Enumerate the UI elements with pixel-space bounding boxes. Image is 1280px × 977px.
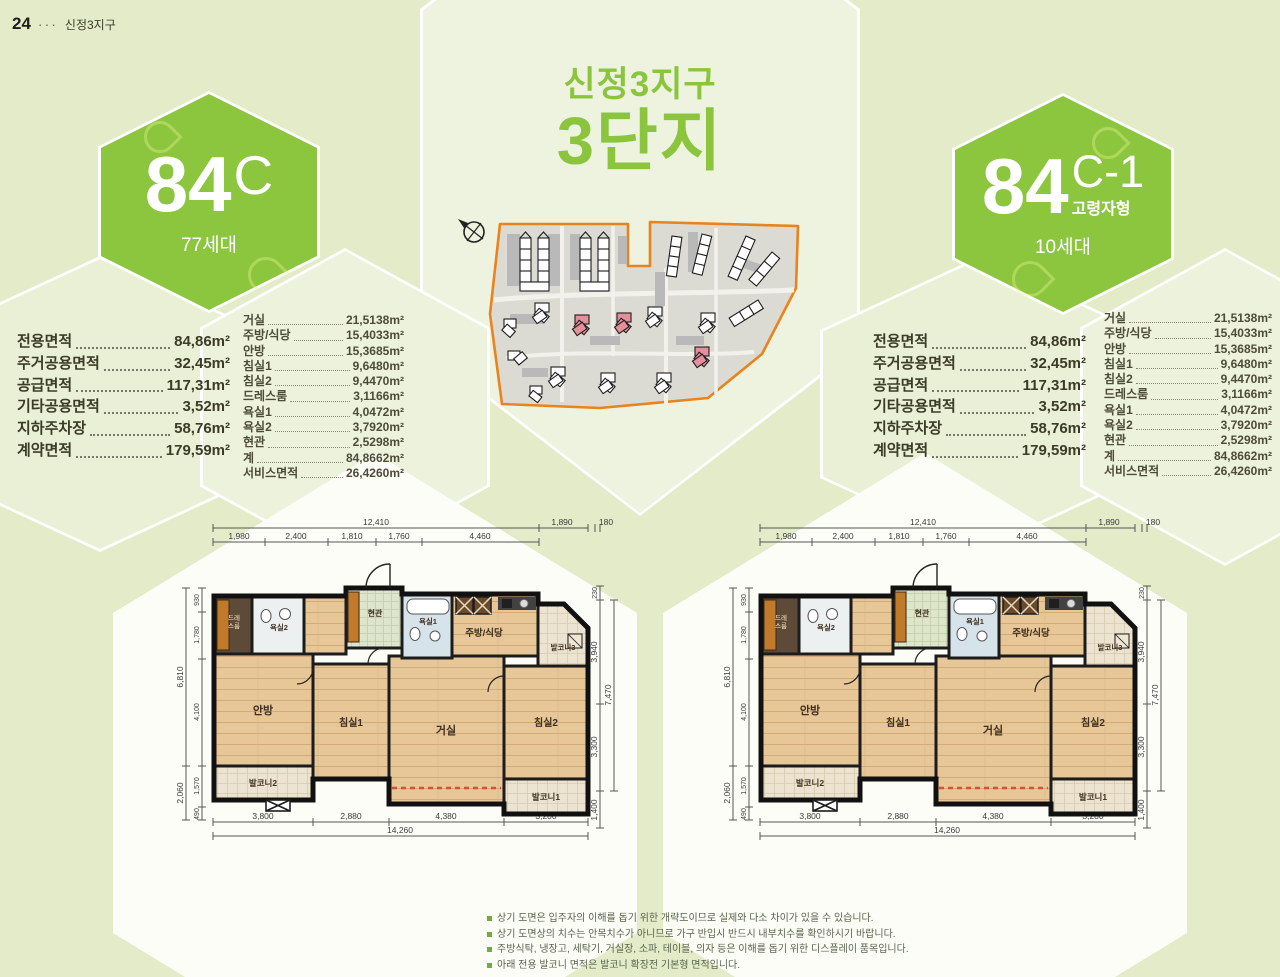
unit-households: 77세대 <box>181 230 237 257</box>
unit-size: 84 <box>982 149 1069 223</box>
spec-value: 32,45m² <box>1030 353 1086 375</box>
svg-text:930: 930 <box>741 594 748 606</box>
svg-text:발코니3: 발코니3 <box>1098 642 1123 652</box>
spec-value: 9,6480m² <box>353 359 404 374</box>
complex-name: 3단지 <box>440 107 840 177</box>
spec-label: 침실2 <box>243 374 272 389</box>
spec-label: 안방 <box>243 344 265 359</box>
spec-value: 15,4033m² <box>346 328 404 343</box>
spec-value: 84,8662m² <box>346 451 404 466</box>
dotted-leader <box>290 401 350 402</box>
spec-label: 현관 <box>243 435 265 450</box>
svg-text:발코니2: 발코니2 <box>249 778 277 788</box>
svg-text:발코니1: 발코니1 <box>532 792 560 802</box>
spec-label: 계 <box>1104 449 1115 464</box>
spec-label: 전용면적 <box>17 331 72 353</box>
svg-text:4,460: 4,460 <box>1016 531 1038 541</box>
spec-label: 계약면적 <box>17 440 72 462</box>
dotted-leader <box>268 447 350 448</box>
spec-label: 안방 <box>1104 342 1126 357</box>
svg-text:발코니2: 발코니2 <box>796 778 824 788</box>
svg-text:욕실2: 욕실2 <box>270 622 288 632</box>
svg-text:침실2: 침실2 <box>534 716 558 729</box>
svg-text:1,810: 1,810 <box>888 531 910 541</box>
svg-text:침실1: 침실1 <box>339 716 363 729</box>
spec-row: 안방15,3685m² <box>1104 342 1272 357</box>
spec-row: 욕실14,0472m² <box>243 405 404 420</box>
dotted-leader <box>268 355 343 356</box>
footnote-line: 상기 도면상의 치수는 안목치수가 아니므로 가구 반입시 반드시 내부치수를 … <box>487 927 932 943</box>
site-map <box>450 196 830 428</box>
spec-row: 드레스룸3,1166m² <box>1104 387 1272 402</box>
spec-row: 전용면적84,86m² <box>873 331 1086 353</box>
toilet <box>808 610 818 623</box>
footnote-text: 상기 도면은 입주자의 이해를 돕기 위한 개략도이므로 실제와 다소 차이가 … <box>497 911 874 927</box>
sink <box>977 631 987 641</box>
kitchen-sink <box>520 600 528 608</box>
svg-text:1,890: 1,890 <box>1098 517 1120 527</box>
spec-label: 서비스면적 <box>1104 464 1159 479</box>
spec-row: 주거공용면적32,45m² <box>873 353 1086 375</box>
spec-value: 3,52m² <box>182 396 230 418</box>
spec-row: 욕실23,7920m² <box>243 420 404 435</box>
dotted-leader <box>76 390 162 392</box>
spec-label: 침실1 <box>1104 357 1133 372</box>
svg-text:4,100: 4,100 <box>741 703 748 721</box>
svg-text:1,980: 1,980 <box>228 531 250 541</box>
spec-value: 58,76m² <box>1030 418 1086 440</box>
building <box>598 232 609 282</box>
spec-label: 욕실2 <box>1104 418 1133 433</box>
dotted-leader <box>1136 414 1218 415</box>
dim-top-labels: 12,410 1,890 180 1,980 2,400 1,810 1,760… <box>775 517 1160 541</box>
range <box>502 599 512 608</box>
header-dots: ··· <box>38 16 58 32</box>
spec-label: 드레스룸 <box>1104 387 1148 402</box>
spec-label: 욕실1 <box>243 405 272 420</box>
balcony-box <box>813 800 837 811</box>
spec-value: 179,59m² <box>166 440 230 462</box>
floorplan-left: 12,410 1,890 180 1,980 2,400 1,810 1,760… <box>168 514 628 859</box>
svg-text:2,880: 2,880 <box>340 811 362 821</box>
spec-label: 침실2 <box>1104 372 1133 387</box>
entry-door-arc <box>366 564 390 588</box>
spec-value: 15,3685m² <box>1214 342 1272 357</box>
dotted-leader <box>1129 353 1211 354</box>
svg-text:2,060: 2,060 <box>722 782 732 804</box>
spec-row: 거실21,5138m² <box>1104 311 1272 326</box>
room-table-left: 거실21,5138m²주방/식당15,4033m²안방15,3685m²침실19… <box>243 313 404 481</box>
floorplan-drawing: 12,410 1,890 180 1,980 2,400 1,810 1,760… <box>168 514 628 859</box>
spec-value: 9,4470m² <box>1221 372 1272 387</box>
spec-row: 주거공용면적32,45m² <box>17 353 230 375</box>
footnote-line: 상기 도면은 입주자의 이해를 돕기 위한 개략도이므로 실제와 다소 차이가 … <box>487 911 932 927</box>
footnote-text: 상기 도면상의 치수는 안목치수가 아니므로 가구 반입시 반드시 내부치수를 … <box>497 927 896 943</box>
spec-row: 주방/식당15,4033m² <box>243 328 404 343</box>
svg-text:침실1: 침실1 <box>886 716 910 729</box>
svg-text:3,800: 3,800 <box>252 811 274 821</box>
floorplan-drawing: 12,410 1,890 180 1,980 2,400 1,810 1,760… <box>715 514 1175 859</box>
spec-value: 4,0472m² <box>353 405 404 420</box>
spec-label: 침실1 <box>243 359 272 374</box>
svg-text:안방: 안방 <box>253 703 273 717</box>
door-arc <box>915 648 931 664</box>
bullet-square-icon <box>487 947 492 952</box>
spec-value: 9,6480m² <box>1221 357 1272 372</box>
bullet-square-icon <box>487 916 492 921</box>
unit-type-group: C-1 고령자형 <box>1072 149 1145 219</box>
spec-label: 공급면적 <box>17 375 72 397</box>
svg-text:14,260: 14,260 <box>934 825 960 835</box>
footnote-line: 주방식탁, 냉장고, 세탁기, 거실장, 소파, 테이블, 의자 등은 이해를 … <box>487 942 932 958</box>
dotted-leader <box>1136 383 1218 384</box>
spec-value: 84,86m² <box>174 331 230 353</box>
svg-text:현관: 현관 <box>368 608 383 618</box>
svg-text:180: 180 <box>599 517 613 527</box>
svg-text:490: 490 <box>741 808 748 820</box>
dim-top-labels: 12,410 1,890 180 1,980 2,400 1,810 1,760… <box>228 517 613 541</box>
spec-row: 전용면적84,86m² <box>17 331 230 353</box>
spec-row: 안방15,3685m² <box>243 344 404 359</box>
spec-value: 26,4260m² <box>1214 464 1272 479</box>
unit-households: 10세대 <box>1035 232 1091 259</box>
spec-label: 공급면적 <box>873 375 928 397</box>
spec-row: 계약면적179,59m² <box>17 440 230 462</box>
area-table-right: 전용면적84,86m²주거공용면적32,45m²공급면적117,31m²기타공용… <box>873 331 1086 462</box>
svg-text:스룸: 스룸 <box>228 622 240 630</box>
bullet-square-icon <box>487 932 492 937</box>
dotted-leader <box>268 324 343 325</box>
dotted-leader <box>1129 445 1218 446</box>
dotted-leader <box>960 412 1035 414</box>
room-hall <box>851 596 893 654</box>
spec-label: 계약면적 <box>873 440 928 462</box>
spec-label: 거실 <box>1104 311 1126 326</box>
dotted-leader <box>104 412 179 414</box>
spec-row: 주방/식당15,4033m² <box>1104 326 1272 341</box>
dotted-leader <box>294 340 343 341</box>
page-number: 24 <box>12 14 31 34</box>
unit-subtype: 고령자형 <box>1072 195 1131 219</box>
svg-text:230: 230 <box>1139 587 1146 599</box>
unit-code: 84 C <box>145 147 274 221</box>
dotted-leader <box>301 477 343 478</box>
spec-value: 26,4260m² <box>346 466 404 481</box>
duct-shaft <box>1003 597 1038 614</box>
toilet <box>410 628 420 641</box>
spec-label: 현관 <box>1104 433 1126 448</box>
unit-code: 84 C-1 고령자형 <box>982 149 1144 223</box>
spec-value: 58,76m² <box>174 418 230 440</box>
svg-text:1,570: 1,570 <box>194 777 201 795</box>
svg-text:180: 180 <box>1146 517 1160 527</box>
svg-text:2,880: 2,880 <box>887 811 909 821</box>
spec-row: 공급면적117,31m² <box>17 375 230 397</box>
spec-label: 계 <box>243 451 254 466</box>
spec-label: 주방/식당 <box>1104 326 1152 341</box>
svg-text:2,400: 2,400 <box>285 531 307 541</box>
svg-text:욕실1: 욕실1 <box>966 616 984 626</box>
spec-value: 4,0472m² <box>1221 403 1272 418</box>
spec-value: 3,7920m² <box>353 420 404 435</box>
spec-row: 현관2,5298m² <box>1104 433 1272 448</box>
dotted-leader <box>1151 399 1218 400</box>
dotted-leader <box>104 369 170 371</box>
dotted-leader <box>1136 429 1218 430</box>
kitchen-sink <box>1067 600 1075 608</box>
svg-text:1,760: 1,760 <box>935 531 957 541</box>
spec-row: 기타공용면적3,52m² <box>873 396 1086 418</box>
spec-label: 거실 <box>243 313 265 328</box>
dotted-leader <box>932 456 1018 458</box>
svg-text:거실: 거실 <box>983 723 1003 737</box>
svg-text:490: 490 <box>194 808 201 820</box>
spec-value: 2,5298m² <box>353 435 404 450</box>
svg-text:230: 230 <box>592 587 599 599</box>
spec-label: 주거공용면적 <box>873 353 956 375</box>
brochure-page: 24 ··· 신정3지구 신정3지구 3단지 84 C 77세대 84 C-1 <box>0 0 1280 977</box>
svg-text:1,980: 1,980 <box>775 531 797 541</box>
svg-text:거실: 거실 <box>436 723 456 737</box>
building <box>520 232 531 282</box>
spec-value: 3,1166m² <box>1221 387 1272 402</box>
svg-text:안방: 안방 <box>800 703 820 717</box>
svg-text:14,260: 14,260 <box>387 825 413 835</box>
unit-type: C <box>234 147 274 205</box>
duct-shaft <box>456 597 491 614</box>
dotted-leader <box>90 434 170 436</box>
spec-row: 침실29,4470m² <box>243 374 404 389</box>
spec-value: 9,4470m² <box>353 374 404 389</box>
spec-row: 공급면적117,31m² <box>873 375 1086 397</box>
balcony-box <box>266 800 290 811</box>
spec-row: 드레스룸3,1166m² <box>243 389 404 404</box>
spec-value: 117,31m² <box>1023 375 1086 397</box>
dim-right <box>1143 586 1165 828</box>
dotted-leader <box>1155 338 1211 339</box>
svg-text:현관: 현관 <box>915 608 930 618</box>
dotted-leader <box>257 462 343 463</box>
spec-value: 15,3685m² <box>346 344 404 359</box>
svg-text:주방/식당: 주방/식당 <box>465 627 503 639</box>
spec-label: 지하주차장 <box>17 418 86 440</box>
dotted-leader <box>275 431 350 432</box>
dotted-leader <box>932 347 1026 349</box>
dim-right <box>596 586 618 828</box>
svg-text:7,470: 7,470 <box>603 684 613 706</box>
svg-text:욕실1: 욕실1 <box>419 616 437 626</box>
spec-row: 계84,8662m² <box>1104 449 1272 464</box>
footnotes: 상기 도면은 입주자의 이해를 돕기 위한 개략도이므로 실제와 다소 차이가 … <box>487 911 932 973</box>
shoe-cabinet <box>895 592 906 642</box>
footnote-text: 주방식탁, 냉장고, 세탁기, 거실장, 소파, 테이블, 의자 등은 이해를 … <box>497 942 909 958</box>
spec-label: 욕실2 <box>243 420 272 435</box>
dotted-leader <box>76 347 170 349</box>
dotted-leader <box>960 369 1026 371</box>
dotted-leader <box>275 416 350 417</box>
range <box>1049 599 1059 608</box>
dotted-leader <box>1162 475 1211 476</box>
compass-icon <box>458 219 484 242</box>
svg-text:4,380: 4,380 <box>435 811 457 821</box>
dim-left-labels: 6,810 2,060 930 1,780 4,100 1,570 490 <box>175 594 201 820</box>
svg-text:욕실2: 욕실2 <box>817 622 835 632</box>
spec-label: 기타공용면적 <box>873 396 956 418</box>
building <box>520 282 549 291</box>
district-name: 신정3지구 <box>440 56 840 107</box>
door-arc <box>368 648 384 664</box>
toilet <box>261 610 271 623</box>
spec-label: 전용면적 <box>873 331 928 353</box>
entry-door-arc <box>913 564 937 588</box>
room-hall <box>304 596 346 654</box>
svg-text:6,810: 6,810 <box>175 666 185 688</box>
building <box>580 282 609 291</box>
spec-row: 기타공용면적3,52m² <box>17 396 230 418</box>
spec-value: 84,86m² <box>1030 331 1086 353</box>
bathtub <box>954 599 996 614</box>
complex-title: 신정3지구 3단지 <box>440 56 840 177</box>
bullet-square-icon <box>487 963 492 968</box>
spec-label: 주거공용면적 <box>17 353 100 375</box>
svg-text:스룸: 스룸 <box>775 622 787 630</box>
spec-label: 기타공용면적 <box>17 396 100 418</box>
room-table-right: 거실21,5138m²주방/식당15,4033m²안방15,3685m²침실19… <box>1104 311 1272 479</box>
dotted-leader <box>946 434 1026 436</box>
spec-row: 서비스면적26,4260m² <box>243 466 404 481</box>
svg-text:6,810: 6,810 <box>722 666 732 688</box>
spec-value: 3,1166m² <box>353 389 404 404</box>
dotted-leader <box>275 385 350 386</box>
svg-text:1,810: 1,810 <box>341 531 363 541</box>
spec-row: 욕실14,0472m² <box>1104 403 1272 418</box>
spec-value: 3,52m² <box>1038 396 1086 418</box>
spec-row: 계약면적179,59m² <box>873 440 1086 462</box>
shoe-cabinet <box>348 592 359 642</box>
toilet <box>957 628 967 641</box>
svg-text:1,760: 1,760 <box>388 531 410 541</box>
svg-text:4,460: 4,460 <box>469 531 491 541</box>
svg-text:7,470: 7,470 <box>1150 684 1160 706</box>
spec-row: 침실19,6480m² <box>243 359 404 374</box>
sink <box>827 609 838 620</box>
svg-text:2,060: 2,060 <box>175 782 185 804</box>
spec-value: 117,31m² <box>167 375 230 397</box>
spec-row: 거실21,5138m² <box>243 313 404 328</box>
bathtub <box>407 599 449 614</box>
spec-value: 2,5298m² <box>1221 433 1272 448</box>
svg-text:1,890: 1,890 <box>551 517 573 527</box>
building <box>580 232 591 282</box>
sink <box>430 631 440 641</box>
footnote-text: 아래 전용 발코니 면적은 발코니 확장전 기본형 면적입니다. <box>497 958 740 974</box>
dotted-leader <box>275 370 350 371</box>
svg-text:발코니3: 발코니3 <box>551 642 576 652</box>
svg-text:드레: 드레 <box>228 613 240 622</box>
dotted-leader <box>932 390 1018 392</box>
spec-row: 계84,8662m² <box>243 451 404 466</box>
building <box>538 232 549 282</box>
unit-size: 84 <box>145 147 232 221</box>
spec-value: 21,5138m² <box>1214 311 1272 326</box>
svg-text:드레: 드레 <box>775 613 787 622</box>
svg-text:930: 930 <box>194 594 201 606</box>
spec-label: 주방/식당 <box>243 328 291 343</box>
unit-type: C-1 <box>1072 149 1145 194</box>
svg-text:4,100: 4,100 <box>194 703 201 721</box>
svg-text:12,410: 12,410 <box>363 517 389 527</box>
spec-row: 욕실23,7920m² <box>1104 418 1272 433</box>
spec-value: 84,8662m² <box>1214 449 1272 464</box>
svg-text:4,380: 4,380 <box>982 811 1004 821</box>
page-header: 24 ··· 신정3지구 <box>12 14 116 34</box>
dotted-leader <box>1118 460 1211 461</box>
spec-row: 서비스면적26,4260m² <box>1104 464 1272 479</box>
spec-label: 서비스면적 <box>243 466 298 481</box>
spec-row: 침실19,6480m² <box>1104 357 1272 372</box>
spec-row: 지하주차장58,76m² <box>873 418 1086 440</box>
svg-text:1,570: 1,570 <box>741 777 748 795</box>
spec-value: 3,7920m² <box>1221 418 1272 433</box>
svg-text:12,410: 12,410 <box>910 517 936 527</box>
spec-label: 지하주차장 <box>873 418 942 440</box>
svg-text:침실2: 침실2 <box>1081 716 1105 729</box>
svg-text:주방/식당: 주방/식당 <box>1012 627 1050 639</box>
spec-label: 드레스룸 <box>243 389 287 404</box>
dotted-leader <box>1129 322 1211 323</box>
svg-text:2,400: 2,400 <box>832 531 854 541</box>
spec-value: 15,4033m² <box>1214 326 1272 341</box>
dim-left-labels: 6,810 2,060 930 1,780 4,100 1,570 490 <box>722 594 748 820</box>
svg-text:1,780: 1,780 <box>194 626 201 644</box>
svg-text:3,800: 3,800 <box>799 811 821 821</box>
area-table-left: 전용면적84,86m²주거공용면적32,45m²공급면적117,31m²기타공용… <box>17 331 230 462</box>
dotted-leader <box>1136 368 1218 369</box>
svg-text:발코니1: 발코니1 <box>1079 792 1107 802</box>
header-section: 신정3지구 <box>65 16 116 33</box>
footnote-line: 아래 전용 발코니 면적은 발코니 확장전 기본형 면적입니다. <box>487 958 932 974</box>
svg-text:1,780: 1,780 <box>741 626 748 644</box>
spec-value: 32,45m² <box>174 353 230 375</box>
spec-row: 현관2,5298m² <box>243 435 404 450</box>
floorplan-right: 12,410 1,890 180 1,980 2,400 1,810 1,760… <box>715 514 1175 859</box>
spec-value: 179,59m² <box>1022 440 1086 462</box>
spec-value: 21,5138m² <box>346 313 404 328</box>
spec-row: 지하주차장58,76m² <box>17 418 230 440</box>
dotted-leader <box>76 456 162 458</box>
sink <box>280 609 291 620</box>
spec-row: 침실29,4470m² <box>1104 372 1272 387</box>
spec-label: 욕실1 <box>1104 403 1133 418</box>
